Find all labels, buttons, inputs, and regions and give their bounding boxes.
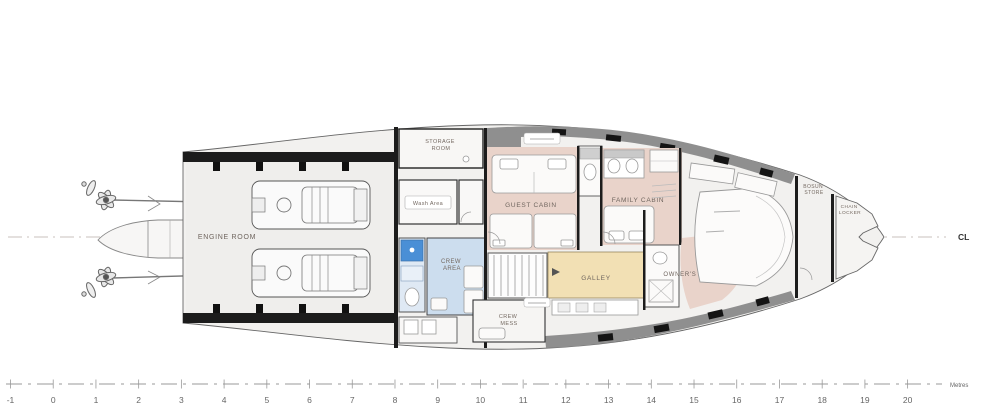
bosun-store-label: BOSUN STORE [803,184,825,196]
galley-label: GALLEY [581,275,611,282]
engine-starboard [252,249,370,297]
ruler-number: 12 [561,395,571,405]
ruler-number: 7 [350,395,355,405]
scale-bar-unit: Metres [950,383,968,389]
ruler-number: 6 [307,395,312,405]
ruler-number: 9 [435,395,440,405]
engine-port [252,181,370,229]
family-cabin-label: FAMILY CABIN [612,197,665,204]
crew-area-label: CREW AREA [441,259,463,272]
ruler-number: 10 [476,395,486,405]
ruler-number: 14 [647,395,657,405]
ruler-number: -1 [7,395,15,405]
sink-icon [653,252,667,264]
galley: GALLEY [548,252,644,315]
propeller-icon [95,266,116,287]
ruler-number: 17 [775,395,785,405]
engine-room-label: ENGINE ROOM [198,234,256,241]
ruler-number: 0 [51,395,56,405]
ruler-number: 16 [732,395,742,405]
wash-area-label: Wash Area [413,201,444,207]
deck-plan-canvas: CL [0,0,1000,420]
collision-bulkhead [795,176,798,298]
crew-mess-label: CREW MESS [499,314,519,327]
toilet-icon [405,288,419,306]
deck-plan-drawing: CL [0,0,1000,420]
rudder-icon [85,281,98,298]
crew-head-room [459,180,483,224]
ruler-number: 1 [94,395,99,405]
ruler-number: 15 [689,395,699,405]
ruler-number: 11 [519,395,528,405]
ruler-number: 5 [264,395,269,405]
bunk-bed [464,266,483,288]
propeller-icon [95,189,116,210]
guest-cabin-label: GUEST CABIN [505,202,557,209]
owners-bed [695,188,793,286]
ruler-number: 3 [179,395,184,405]
sink-icon [626,159,638,173]
ruler-number: 18 [817,395,827,405]
rudder-icon [85,179,98,196]
mess-table [479,328,505,339]
ruler-number: 20 [903,395,913,405]
sink-icon [608,159,620,173]
scale-bar: -101234567891011121314151617181920 Metre… [6,380,968,406]
ruler-number: 4 [222,395,227,405]
stairs [488,253,547,298]
stern-skeg-outline [98,220,186,258]
forepeak-bulkhead [831,194,834,282]
engine-room: ENGINE ROOM [183,127,398,348]
ruler-number: 8 [393,395,398,405]
ruler-number: 13 [604,395,614,405]
centerline-label: CL [958,232,969,242]
guest-cabin: GUEST CABIN [487,147,578,250]
toilet-icon [584,164,596,180]
ruler-number: 2 [136,395,141,405]
ruler-number: 19 [860,395,870,405]
family-cabin: FAMILY CABIN [600,146,682,246]
